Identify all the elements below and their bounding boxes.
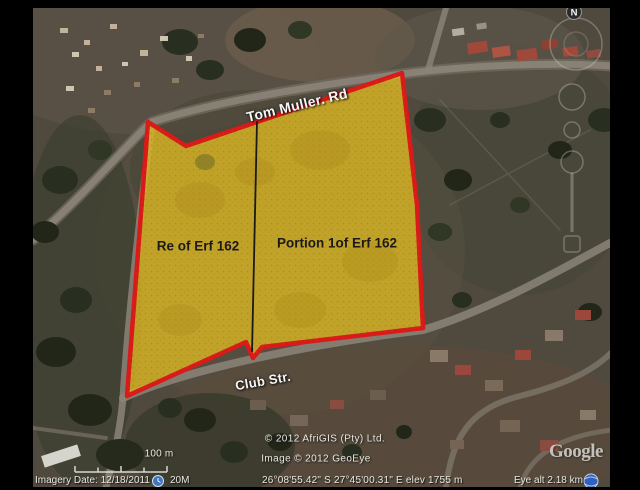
google-watermark: Google [549,441,603,463]
historical-imagery-icon[interactable] [153,476,164,487]
globe-status-icon [584,474,598,488]
compass-north-label: N [571,8,578,19]
parcel-tree-spot [195,154,215,170]
google-earth-window: N Tom Muller. Rd Club Str. Re of Erf 162… [0,0,640,490]
satellite-canvas[interactable]: N [0,0,640,490]
